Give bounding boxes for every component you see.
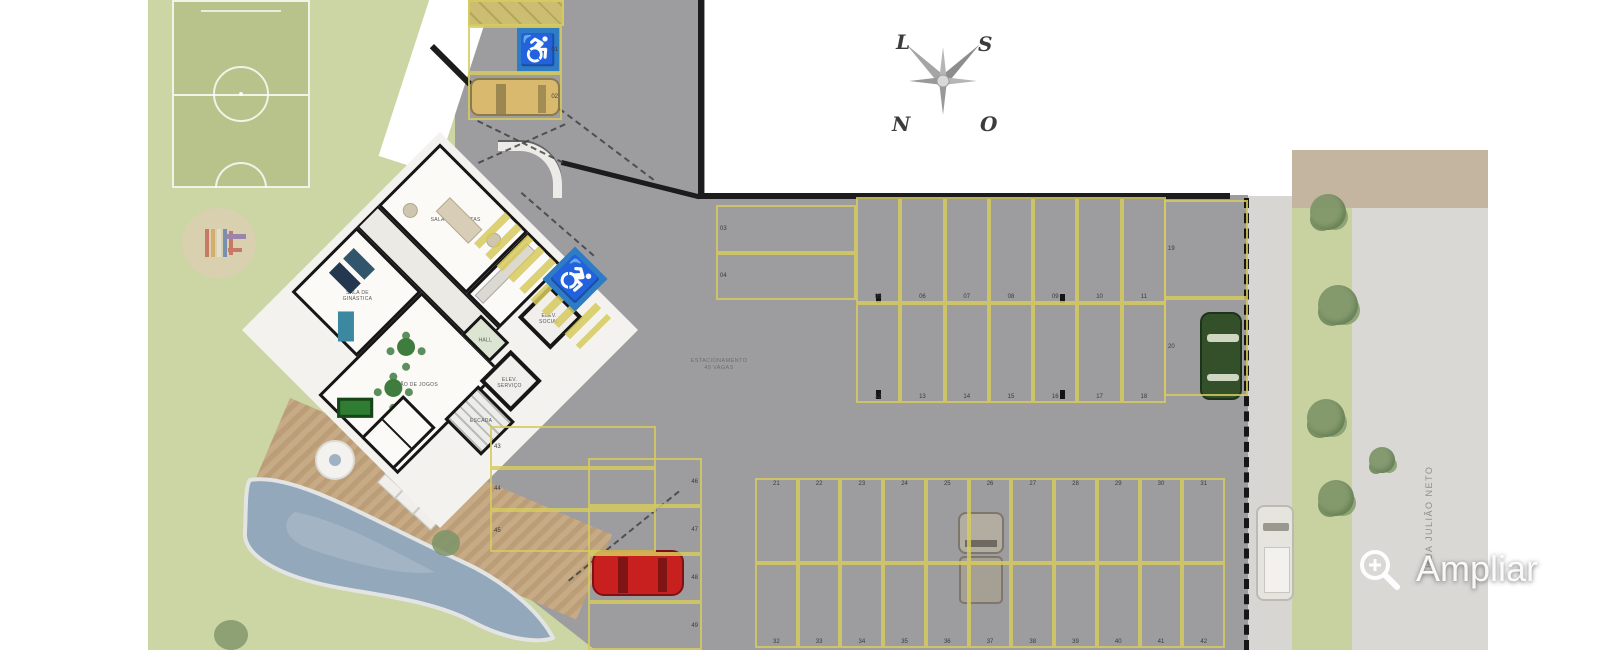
stall-number: 17 bbox=[1096, 394, 1103, 400]
stall-number: 38 bbox=[1029, 639, 1036, 645]
parking-stall: 39 bbox=[1054, 563, 1097, 648]
stall-number: 21 bbox=[773, 481, 780, 487]
stall-number: 10 bbox=[1096, 294, 1103, 300]
parking-stall: 10 bbox=[1077, 197, 1121, 303]
stall-number: 30 bbox=[1158, 481, 1165, 487]
parking-stall-group-entry: 0102 bbox=[468, 26, 562, 120]
stall-number: 02 bbox=[551, 94, 558, 100]
stall-number: 09 bbox=[1052, 294, 1059, 300]
stall-number: 36 bbox=[944, 639, 951, 645]
compass-letter-o: O bbox=[980, 112, 997, 136]
magnifier-plus-icon bbox=[1356, 546, 1402, 592]
parking-stall: 47 bbox=[588, 506, 702, 554]
parking-stall: 31 bbox=[1182, 478, 1225, 563]
parking-stall: 33 bbox=[798, 563, 841, 648]
watermark-logo bbox=[182, 208, 256, 278]
stall-number: 29 bbox=[1115, 481, 1122, 487]
room-label: SALA DE GINÁSTICA bbox=[332, 291, 382, 303]
parking-stall: 17 bbox=[1077, 303, 1121, 403]
stall-number: 49 bbox=[691, 623, 698, 629]
stall-number: 37 bbox=[987, 639, 994, 645]
parking-label-line2: 49 VAGAS bbox=[664, 365, 774, 372]
compass-rose: L S N O bbox=[868, 16, 1018, 146]
parking-stall: 04 bbox=[716, 253, 856, 301]
stall-number: 34 bbox=[858, 639, 865, 645]
stall-number: 06 bbox=[919, 294, 926, 300]
property-wall-north-vertical bbox=[698, 0, 704, 197]
stall-number: 46 bbox=[691, 479, 698, 485]
stall-number: 39 bbox=[1072, 639, 1079, 645]
parking-stall: 28 bbox=[1054, 478, 1097, 563]
sidewalk-tree bbox=[1369, 447, 1395, 473]
logo-bar bbox=[211, 229, 215, 257]
parking-stall: 07 bbox=[945, 197, 989, 303]
sidewalk-tree bbox=[1318, 285, 1358, 325]
room-label: ESCADA bbox=[468, 419, 494, 425]
parking-stall: 41 bbox=[1140, 563, 1183, 648]
parking-stall-group-right-column: 1920 bbox=[1164, 200, 1248, 396]
parking-stall: 06 bbox=[900, 197, 944, 303]
sidewalk-tree bbox=[1318, 480, 1354, 516]
stall-number: 23 bbox=[858, 481, 865, 487]
ampliar-zoom-control[interactable]: Ampliar bbox=[1356, 546, 1538, 592]
parking-stall: 11 bbox=[1122, 197, 1166, 303]
parking-stall: 18 bbox=[1122, 303, 1166, 403]
logo-bar-horizontal bbox=[226, 234, 246, 239]
parking-stall: 19 bbox=[1164, 200, 1248, 298]
parking-stall: 22 bbox=[798, 478, 841, 563]
parking-stall: 05 bbox=[856, 197, 900, 303]
parking-stall: 26 bbox=[969, 478, 1012, 563]
van-white bbox=[1256, 505, 1294, 601]
soccer-field bbox=[172, 0, 310, 188]
parking-stall: 21 bbox=[755, 478, 798, 563]
parking-stall: 01 bbox=[468, 26, 562, 73]
field-bottom-arc bbox=[215, 162, 267, 188]
stall-number: 45 bbox=[494, 528, 501, 534]
stall-number: 33 bbox=[816, 639, 823, 645]
logo-bar-horizontal bbox=[228, 248, 242, 252]
parking-stall: 25 bbox=[926, 478, 969, 563]
parking-stall: 40 bbox=[1097, 563, 1140, 648]
parking-stall: 23 bbox=[840, 478, 883, 563]
stall-number: 24 bbox=[901, 481, 908, 487]
stall-number: 13 bbox=[919, 394, 926, 400]
stall-number: 20 bbox=[1168, 344, 1175, 350]
parking-stall: 42 bbox=[1182, 563, 1225, 648]
stall-number: 40 bbox=[1115, 639, 1122, 645]
gym-equipment bbox=[338, 311, 354, 341]
parking-stall: 37 bbox=[969, 563, 1012, 648]
parking-stall: 08 bbox=[989, 197, 1033, 303]
parking-stall: 24 bbox=[883, 478, 926, 563]
van-roof-line bbox=[1264, 547, 1290, 593]
parking-stall: 48 bbox=[588, 554, 702, 602]
parking-stall: 38 bbox=[1011, 563, 1054, 648]
stall-number: 47 bbox=[691, 527, 698, 533]
parking-stall-group-mid-row: 12131415161718 bbox=[856, 303, 1166, 403]
parking-stall: 32 bbox=[755, 563, 798, 648]
parking-stall: 16 bbox=[1033, 303, 1077, 403]
stall-number: 12 bbox=[875, 394, 882, 400]
spa-inner bbox=[329, 454, 341, 466]
stall-number: 14 bbox=[963, 394, 970, 400]
parking-stall-group-bottom-upper: 2122232425262728293031 bbox=[755, 478, 1225, 563]
parking-stall: 49 bbox=[588, 602, 702, 650]
stall-number: 44 bbox=[494, 486, 501, 492]
compass-letter-s: S bbox=[978, 32, 992, 56]
stall-number: 08 bbox=[1008, 294, 1015, 300]
stall-number: 27 bbox=[1029, 481, 1036, 487]
parking-stall-group-southwest-rows: 46474849 bbox=[588, 458, 702, 650]
parking-stall: 12 bbox=[856, 303, 900, 403]
stall-number: 48 bbox=[691, 575, 698, 581]
parking-stall: 35 bbox=[883, 563, 926, 648]
stall-number: 07 bbox=[963, 294, 970, 300]
stall-number: 04 bbox=[720, 273, 727, 279]
stall-number: 43 bbox=[494, 444, 501, 450]
parking-stall: 34 bbox=[840, 563, 883, 648]
field-center-dot bbox=[239, 92, 243, 96]
room-label: ELEV. SERVIÇO bbox=[495, 378, 523, 390]
parking-stall: 36 bbox=[926, 563, 969, 648]
shrub bbox=[432, 530, 460, 556]
party-table-round bbox=[400, 200, 421, 221]
parking-stall: 27 bbox=[1011, 478, 1054, 563]
stall-number: 35 bbox=[901, 639, 908, 645]
compass-letter-l: L bbox=[896, 30, 910, 54]
stall-number: 19 bbox=[1168, 246, 1175, 252]
compass-letter-n: N bbox=[892, 112, 910, 136]
parking-stall-group-top-row: 05060708091011 bbox=[856, 197, 1166, 303]
ampliar-label: Ampliar bbox=[1416, 548, 1538, 590]
entry-hatch-strip bbox=[468, 0, 564, 26]
stall-number: 03 bbox=[720, 226, 727, 232]
stall-number: 42 bbox=[1200, 639, 1207, 645]
stall-number: 32 bbox=[773, 639, 780, 645]
parking-stall: 02 bbox=[468, 73, 562, 120]
pool-table bbox=[337, 398, 373, 418]
parking-stall: 20 bbox=[1164, 298, 1248, 396]
shrub bbox=[214, 620, 248, 650]
stall-number: 15 bbox=[1008, 394, 1015, 400]
stall-number: 16 bbox=[1052, 394, 1059, 400]
parking-label-line1: ESTACIONAMENTO bbox=[664, 358, 774, 365]
parking-stall: 15 bbox=[989, 303, 1033, 403]
parking-stall: 13 bbox=[900, 303, 944, 403]
stall-number: 22 bbox=[816, 481, 823, 487]
parking-stall: 46 bbox=[588, 458, 702, 506]
stall-number: 11 bbox=[1141, 294, 1147, 300]
service-divider bbox=[382, 419, 412, 449]
logo-bar bbox=[205, 229, 209, 257]
logo-bar bbox=[217, 229, 221, 257]
parking-stall: 30 bbox=[1140, 478, 1183, 563]
parking-stall-group-bottom-lower: 3233343536373839404142 bbox=[755, 563, 1225, 648]
stall-number: 28 bbox=[1072, 481, 1079, 487]
stall-number: 26 bbox=[987, 481, 994, 487]
field-top-line bbox=[201, 10, 281, 12]
stall-number: 41 bbox=[1158, 639, 1165, 645]
site-plan-canvas: RUA JULIÃO NETO SALÃO DE FESTAS SALA DE … bbox=[0, 0, 1600, 650]
sidewalk-tree bbox=[1307, 399, 1345, 437]
parking-stall: 09 bbox=[1033, 197, 1077, 303]
parking-stall: 14 bbox=[945, 303, 989, 403]
stall-number: 05 bbox=[875, 294, 882, 300]
parking-stall-group-top-horizontal: 0304 bbox=[716, 205, 856, 300]
room-label: HALL bbox=[474, 338, 496, 344]
stall-number: 31 bbox=[1200, 481, 1207, 487]
sidewalk-tree bbox=[1310, 194, 1346, 230]
parking-stall: 03 bbox=[716, 205, 856, 253]
van-windshield bbox=[1263, 523, 1289, 531]
stall-number: 25 bbox=[944, 481, 951, 487]
stall-number: 01 bbox=[551, 47, 558, 53]
games-round-table bbox=[393, 334, 418, 359]
stall-number: 18 bbox=[1140, 394, 1147, 400]
parking-center-label: ESTACIONAMENTO 49 VAGAS bbox=[664, 358, 774, 372]
parking-stall: 29 bbox=[1097, 478, 1140, 563]
